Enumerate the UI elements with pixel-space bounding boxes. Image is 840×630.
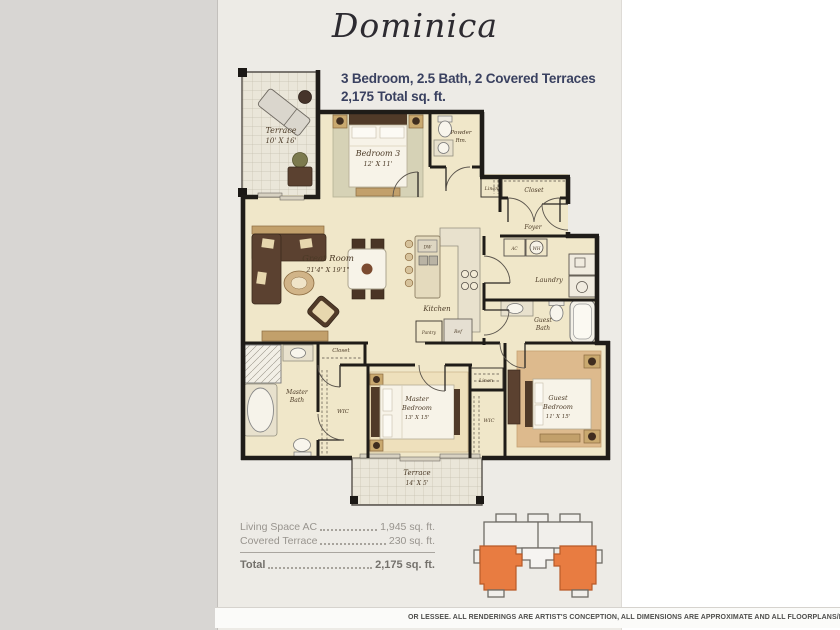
building-key-plan [472, 508, 604, 606]
label-wic-master: WIC [337, 409, 350, 415]
master-bedroom-furniture [370, 372, 468, 452]
label-hall-closet: Closet [332, 348, 350, 354]
dot-leader [320, 543, 385, 545]
terrace-post [350, 496, 358, 504]
keyplan-top-tab [528, 514, 548, 522]
label-terrace-lower-dims: 14' X 5' [406, 480, 429, 487]
keyplan-top-tab [496, 514, 516, 522]
total-label: Total [240, 559, 265, 571]
label-powder-2: Rm. [454, 138, 466, 144]
label-master-bath-1: Master [285, 389, 309, 396]
slider-panel [360, 454, 400, 458]
label-guest-bedroom-1: Guest [548, 394, 568, 402]
dot-leader [268, 567, 372, 569]
terrace-side-table [299, 91, 312, 104]
scanned-floorplan-brochure: { "header": { "title": "Dominica", "spec… [0, 0, 840, 630]
floorplan-drawing: Terrace 10' X 16' Bedroom 3 12' X 11' Po… [230, 62, 622, 514]
label-guest-bedroom-2: Bedroom [542, 403, 573, 411]
label-terrace-lower: Terrace [403, 469, 430, 477]
disclaimer-bar: OR LESSEE. ALL RENDERINGS ARE ARTIST'S C… [215, 607, 840, 628]
label-bedroom3-dims: 12' X 11' [364, 160, 393, 168]
summary-value: 230 sq. ft. [389, 535, 435, 547]
label-master-bedroom-2: Bedroom [401, 404, 432, 412]
terrace-plant [293, 153, 308, 168]
washer [569, 254, 596, 275]
keyplan-top-tab [560, 514, 580, 522]
summary-row: Living Space AC 1,945 sq. ft. [240, 521, 435, 533]
label-guest-bath-1: Guest [534, 317, 552, 324]
summary-label: Living Space AC [240, 521, 317, 533]
disclaimer-text: OR LESSEE. ALL RENDERINGS ARE ARTIST'S C… [408, 614, 840, 621]
label-wh: WH [533, 246, 541, 251]
label-ref: Ref [453, 329, 463, 335]
keyplan-bottom-tab [572, 590, 588, 597]
terrace-table [288, 167, 312, 186]
label-terrace-upper-dims: 10' X 16' [265, 137, 296, 145]
label-master-bath-2: Bath [289, 397, 304, 404]
keyplan-side-tab [596, 550, 602, 563]
terrace-post [476, 496, 484, 504]
summary-total-row: Total 2,175 sq. ft. [240, 559, 435, 571]
slider-panel [258, 193, 282, 197]
keyplan-unit-highlight-left [480, 546, 522, 590]
label-foyer: Foyer [523, 224, 542, 231]
summary-label: Covered Terrace [240, 535, 317, 547]
label-linen-upper: Linen [484, 186, 499, 192]
label-linen-lower: Linen [478, 378, 493, 384]
label-pantry: Pantry [421, 331, 437, 336]
label-great-room: Great Room [302, 254, 354, 264]
label-master-bedroom-dims: 13' X 15' [405, 415, 429, 421]
master-bathtub [248, 388, 274, 432]
label-guest-bath-2: Bath [535, 325, 550, 332]
terrace-post [238, 68, 247, 77]
keyplan-center-court [522, 548, 554, 568]
summary-divider [240, 552, 435, 553]
label-dw: DW [423, 245, 432, 250]
label-great-room-dims: 21'4" X 19'1" [305, 266, 349, 274]
label-entry-closet: Closet [524, 187, 544, 194]
dot-leader [320, 529, 377, 531]
keyplan-bottom-tab [488, 590, 504, 597]
label-guest-bedroom-dims: 11' X 15' [546, 414, 570, 420]
dryer [569, 276, 596, 297]
label-terrace-upper: Terrace [265, 126, 296, 135]
area-summary: Living Space AC 1,945 sq. ft. Covered Te… [240, 521, 435, 573]
summary-value: 1,945 sq. ft. [380, 521, 435, 533]
scan-margin-strip [0, 0, 218, 630]
label-laundry: Laundry [534, 276, 563, 284]
keyplan-side-tab [474, 550, 480, 563]
summary-row: Covered Terrace 230 sq. ft. [240, 535, 435, 547]
label-master-bedroom-1: Master [404, 395, 429, 403]
label-powder-1: Powder [450, 130, 472, 136]
total-value: 2,175 sq. ft. [375, 559, 435, 571]
keyplan-unit-highlight-right [554, 546, 596, 590]
slider-panel [280, 196, 304, 200]
page-title: Dominica [315, 6, 515, 45]
slider-panel [400, 457, 440, 461]
label-bedroom3: Bedroom 3 [355, 149, 400, 158]
label-kitchen: Kitchen [422, 305, 451, 313]
slider-panel [440, 454, 480, 458]
label-wic-guest: WIC [484, 418, 495, 424]
label-ac: AC [510, 246, 518, 251]
